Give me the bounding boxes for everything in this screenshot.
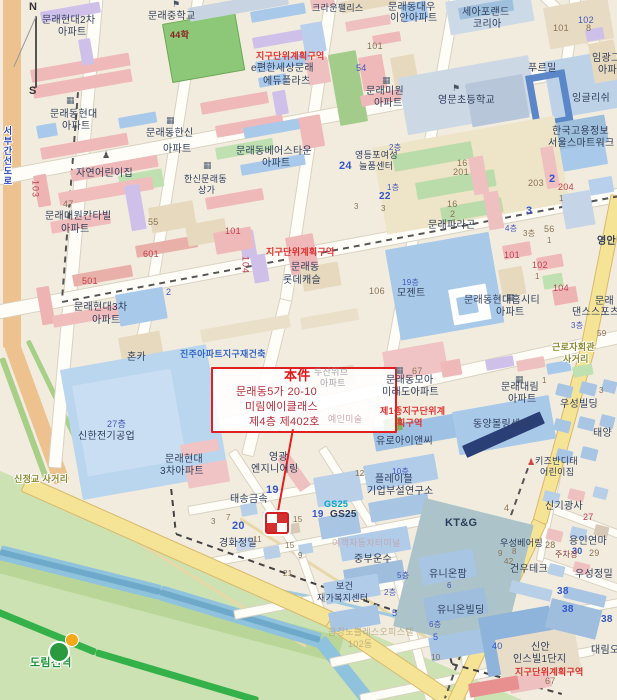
zoning-label: 제1종지구단위계 (380, 407, 445, 416)
zoning-label: 지구단위계획구역 (256, 52, 325, 61)
map-label: 아파트 (320, 379, 346, 388)
map-label: 501 (82, 277, 98, 286)
map-label: 태양 (593, 429, 612, 440)
map-label: 에듀플라츠 (263, 77, 311, 88)
map-shape (300, 308, 359, 330)
map-label: 문래현대 (165, 455, 203, 466)
map-label: 20 (232, 521, 245, 533)
map-label: 신기광사 (545, 502, 583, 513)
map-label: 2 (549, 174, 555, 186)
map-label: 아파트 (508, 395, 537, 406)
map-label: 38 (601, 615, 613, 626)
map-label: 8 (512, 548, 517, 556)
map-label: 40 (492, 642, 503, 651)
map-label: 영문초등학교 (438, 96, 495, 107)
map-label: 7 (226, 514, 231, 522)
map-label: 두산위브 (314, 368, 348, 377)
map-label: 44학 (170, 31, 189, 40)
map-label: 문래동모아 (386, 376, 434, 387)
map-label: 1 (535, 273, 540, 281)
map-label: 경화정밀 (219, 539, 257, 550)
map-shape (440, 359, 462, 378)
map-label: 문래동현대 (50, 110, 98, 121)
map-shape (572, 364, 594, 378)
map-label: 사거리 (563, 355, 589, 364)
map-label: 어린이집 (540, 468, 574, 477)
map-label: 플레이블 (375, 475, 413, 486)
map-label: 상가 (198, 186, 215, 195)
map-label: 우성빌딩 (560, 400, 598, 411)
map-label: 2층 (384, 589, 396, 597)
map-label: 4 (504, 504, 509, 513)
map-label: 12 (355, 470, 365, 478)
map-label: 동양볼링센터 (473, 420, 530, 431)
map-label: 19층 (402, 279, 419, 287)
exit-badge (65, 633, 79, 647)
gs25-store-label: GS25 (330, 510, 357, 521)
map-shape (580, 446, 598, 462)
map-label: 1 (547, 237, 552, 245)
map-label: 3 (599, 387, 604, 395)
map-label: 키즈반디태 (535, 457, 578, 466)
map-label: KT&G (445, 518, 477, 530)
map-label: 예인미술 (328, 415, 362, 424)
map-label: 늘품센터 (359, 162, 393, 171)
map-label: 104 (553, 284, 569, 293)
map-shape (345, 14, 391, 32)
map-label: 203 (528, 179, 544, 188)
map-label: 문래동 (291, 263, 320, 274)
map-label: 서울스마트워크 (548, 139, 615, 150)
map-label: 201 (453, 168, 469, 177)
map-label: 3 (381, 205, 386, 213)
map-label: 영등포여성 (355, 151, 398, 160)
map-shape (36, 123, 58, 139)
map-label: 아파트 (163, 145, 192, 156)
map-label: 56 (544, 225, 555, 234)
map-label: 미래도아파트 (382, 388, 439, 399)
map-label: 103 (30, 180, 39, 198)
map-shape (592, 486, 608, 500)
compass-s: S (29, 86, 37, 98)
map-label: 우성정밀 (575, 570, 613, 581)
map-label: 6 (447, 582, 452, 590)
map-label: 3 (354, 203, 359, 211)
map-label: 3층 (571, 322, 583, 330)
map-label: 영광 (269, 453, 288, 464)
map-label: 문래동한신 (146, 129, 194, 140)
map-label: 아파트 (374, 99, 403, 110)
map-label: 문래대원칸타빌 (45, 212, 112, 223)
map-label: 신한전기공업 (78, 432, 135, 443)
map-label: 엔지니어링 (251, 465, 299, 476)
map-label: 2 (450, 210, 455, 219)
map-label: 5 (433, 633, 438, 642)
daycare-icon: ♟ (102, 151, 110, 160)
zoning-label: 지구단위계획구역 (266, 248, 335, 257)
map-label: 19 (312, 510, 324, 521)
map-label: 27층 (107, 420, 126, 429)
map-label: 문래중학교 (148, 12, 196, 23)
map-canvas[interactable]: NS문래현대2차아파트⚑문래중학교44학크라운팰리스문래동대우이안아파트세아포랜… (0, 0, 617, 700)
map-label: 102 (578, 16, 594, 25)
map-label: 우성베어링 (500, 539, 543, 548)
map-label: 15 (293, 516, 303, 524)
school-icon: ⚑ (172, 0, 180, 9)
map-label: 코리아 (473, 20, 502, 31)
map-label: 아파트 (62, 122, 91, 133)
map-label: 건우테크 (510, 565, 548, 576)
map-label: 임광그 (592, 54, 617, 65)
map-label: 문래현대3차 (74, 303, 127, 314)
map-label: 59 (597, 330, 607, 338)
map-shape (553, 418, 571, 434)
map-label: e편한세상문래 (251, 64, 314, 75)
map-label: 1 (559, 195, 564, 203)
map-shape (169, 478, 177, 534)
map-label: 3차아파트 (160, 467, 204, 478)
map-label: 2층 (389, 144, 401, 152)
map-label: 67 (545, 677, 556, 686)
map-label: 아파트 (262, 159, 291, 170)
map-label: 신안 (531, 643, 550, 654)
map-label: 획구역 (397, 419, 423, 428)
compass-needle (35, 16, 37, 88)
map-label: 아파 (598, 66, 617, 77)
map-label: 대림오 (591, 646, 617, 657)
map-label: 혼카 (127, 353, 146, 364)
map-label: 2 (166, 288, 171, 297)
subject-address: 문래동5가 20-10 (236, 387, 317, 399)
map-label: 6층 (429, 621, 441, 629)
map-label: 1층 (387, 184, 399, 192)
map-shape (509, 580, 553, 602)
subject-unit: 제4층 제402호 (249, 417, 320, 429)
subject-building-name: 미림에이클래스 (245, 402, 318, 414)
map-label: 세아포랜드 (462, 8, 510, 19)
map-label: 금강노블레스오피스텔 (328, 628, 414, 637)
building-icon: ▦ (203, 161, 212, 170)
map-label: 5 (392, 609, 397, 618)
map-label: 문래동베어스타운 (236, 147, 312, 158)
compass-n: N (29, 2, 37, 14)
map-label: 102 (532, 261, 548, 270)
map-label: 잉글리쉬 (572, 94, 610, 105)
map-shape (555, 383, 573, 399)
map-label: 유로아이앤씨 (376, 437, 433, 448)
road-name-label: 영안 (597, 237, 616, 248)
map-label: 푸르밀 (528, 64, 557, 75)
map-shape (252, 29, 303, 49)
map-shape (200, 91, 269, 115)
map-label: 크라운팰리스 (312, 4, 363, 13)
map-label: 아파트 (92, 316, 121, 327)
map-label: 38 (562, 605, 574, 616)
map-label: 102동 (348, 640, 373, 649)
subject-marker[interactable] (265, 512, 289, 534)
map-label: 3층 (523, 230, 535, 238)
map-label: 유니온팜 (429, 570, 467, 581)
map-label: 3 (526, 206, 532, 218)
map-label: 아파트 (496, 308, 525, 319)
map-label: 자연어린이집 (76, 169, 133, 180)
map-label: 38 (557, 587, 569, 598)
map-label: 101 (504, 251, 520, 260)
map-label: 101 (367, 42, 383, 51)
map-label: 101 (225, 227, 241, 236)
intersection-label: 근로자회관 (552, 343, 595, 352)
map-label: 중부운수 (354, 555, 392, 566)
map-label: 유니온빌딩 (437, 606, 485, 617)
apartment-icon: ▦ (166, 116, 175, 125)
map-label: 10 (431, 654, 441, 662)
map-label: 47 (63, 200, 74, 209)
map-label: 9 (498, 550, 503, 558)
map-label: 3 (211, 518, 216, 526)
map-label: 106 (369, 287, 385, 296)
map-shape (599, 414, 615, 429)
map-label: 문래대림 (501, 383, 539, 394)
map-label: 4층 (505, 225, 517, 233)
apartment-icon: ▦ (382, 76, 391, 85)
apartment-icon: ▦ (66, 96, 75, 105)
map-label: 문래파라곤 (428, 221, 476, 232)
map-label: 104 (240, 256, 249, 274)
map-label: 29 (589, 549, 600, 558)
map-label: 601 (143, 250, 159, 259)
map-label: 42 (504, 558, 514, 566)
map-label: 101 (553, 24, 569, 33)
map-label: 롯데캐슬 (283, 276, 321, 287)
map-label: 한신문래동 (184, 175, 227, 184)
map-label: 태송금속 (230, 495, 268, 506)
map-label: 문래동대우 (388, 3, 436, 14)
map-label: 22 (379, 192, 391, 203)
map-label: 인스빌1단지 (513, 655, 566, 666)
map-label: 15 (285, 542, 295, 550)
map-label: 주차장 (555, 551, 578, 559)
map-label: 재가복지센터 (317, 594, 368, 603)
map-shape (560, 190, 596, 230)
intersection-label: 신정교 사거리 (14, 475, 68, 484)
subject-title: 本件 (284, 369, 311, 383)
map-shape (118, 111, 157, 128)
map-label: 문래현대2차 (42, 16, 95, 27)
map-label: 문래 (595, 297, 614, 308)
map-label: 54 (356, 64, 367, 73)
map-label: 11 (253, 536, 262, 544)
map-label: 보건 (336, 582, 353, 591)
map-label: 댄스스포츠 (572, 308, 617, 319)
map-label: 21 (283, 570, 293, 578)
map-shape (263, 545, 281, 560)
map-label: 5층 (397, 572, 409, 580)
map-label: 이안아파트 (390, 14, 438, 25)
map-label: 27 (583, 513, 594, 522)
map-shape (272, 90, 289, 116)
map-label: 24 (339, 161, 352, 173)
map-label: 기업부설연구소 (367, 487, 434, 498)
map-label: 9 (298, 552, 303, 560)
map-label: 모젠트 (397, 289, 426, 300)
road-name-label: 서부간선도로 (2, 126, 11, 186)
map-label: 문래동현대홈시티 (464, 296, 540, 307)
map-label: 한국고용정보 (552, 127, 609, 138)
map-label: 1 (542, 377, 547, 385)
map-label: 아파트 (61, 225, 90, 236)
map-label: 여객자동차터미널 (332, 539, 401, 548)
map-label: 204 (558, 183, 574, 192)
map-label: 아파트 (58, 28, 87, 39)
map-label: 55 (148, 218, 159, 227)
redevelopment-label: 진주아파트지구재건축 (180, 350, 266, 359)
map-label: 문래미원 (366, 87, 404, 98)
school-icon: ⚑ (452, 84, 460, 93)
